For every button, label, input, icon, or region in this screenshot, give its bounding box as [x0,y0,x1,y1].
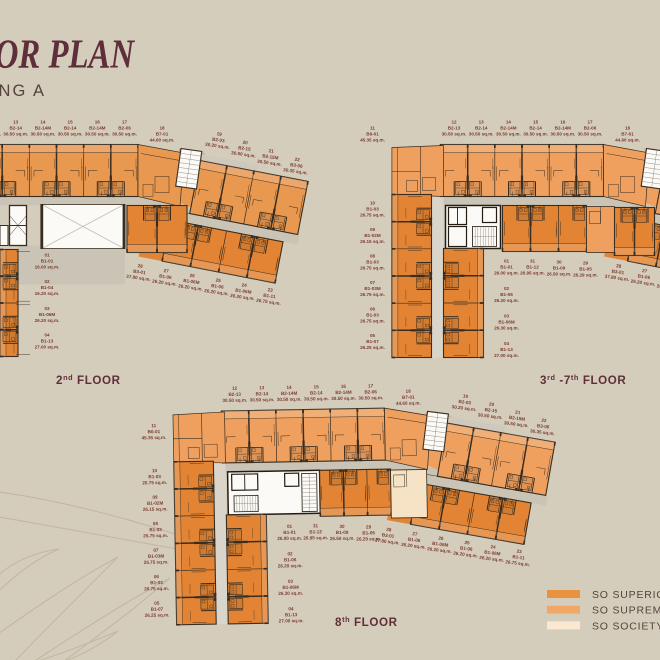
svg-text:SO SUPREME: SO SUPREME [592,605,660,617]
svg-text:FLOOR PLAN: FLOOR PLAN [0,32,136,77]
svg-text:SO SUPERIOR: SO SUPERIOR [592,589,660,601]
svg-text:SO SOCIETY: SO SOCIETY [592,620,660,632]
svg-text:BUILDING A: BUILDING A [0,82,46,100]
